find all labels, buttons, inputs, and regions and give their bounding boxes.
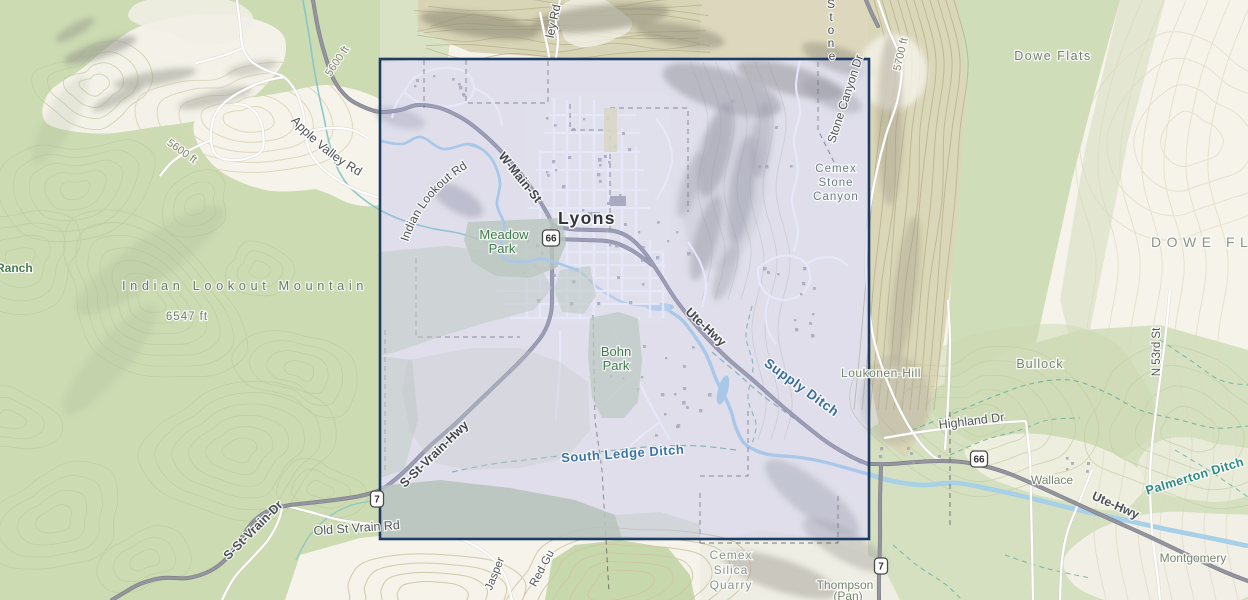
svg-text:Bullock: Bullock (1016, 357, 1063, 371)
svg-text:N 53rd St: N 53rd St (1151, 327, 1163, 376)
svg-text:Indian Lookout Mountain: Indian Lookout Mountain (122, 278, 368, 293)
svg-text:Canyon: Canyon (813, 191, 859, 203)
svg-text:Quarry: Quarry (710, 578, 753, 592)
svg-text:Dowe Flats: Dowe Flats (1014, 49, 1092, 63)
svg-text:Cemex: Cemex (815, 163, 856, 175)
svg-text:7: 7 (374, 495, 380, 506)
svg-text:Ranch: Ranch (0, 261, 33, 275)
svg-text:Meadow: Meadow (479, 227, 529, 242)
svg-text:Park: Park (603, 358, 630, 373)
svg-text:(Pan): (Pan) (833, 589, 862, 600)
svg-text:Loukonen-Hill: Loukonen-Hill (841, 366, 921, 380)
svg-text:7: 7 (878, 562, 884, 573)
svg-text:66: 66 (973, 455, 985, 466)
svg-text:DOWE FLATS: DOWE FLATS (1151, 234, 1248, 250)
svg-text:Lyons: Lyons (558, 208, 616, 228)
svg-text:6547 ft: 6547 ft (166, 311, 208, 323)
svg-text:Bohn: Bohn (601, 344, 631, 359)
svg-text:Park: Park (489, 241, 516, 256)
svg-text:Cemex: Cemex (709, 548, 752, 562)
svg-text:Montgomery: Montgomery (1160, 551, 1227, 565)
svg-text:Silica: Silica (714, 563, 749, 577)
svg-text:Stone: Stone (818, 177, 853, 189)
svg-text:66: 66 (545, 234, 557, 245)
svg-text:Wallace: Wallace (1031, 473, 1074, 487)
